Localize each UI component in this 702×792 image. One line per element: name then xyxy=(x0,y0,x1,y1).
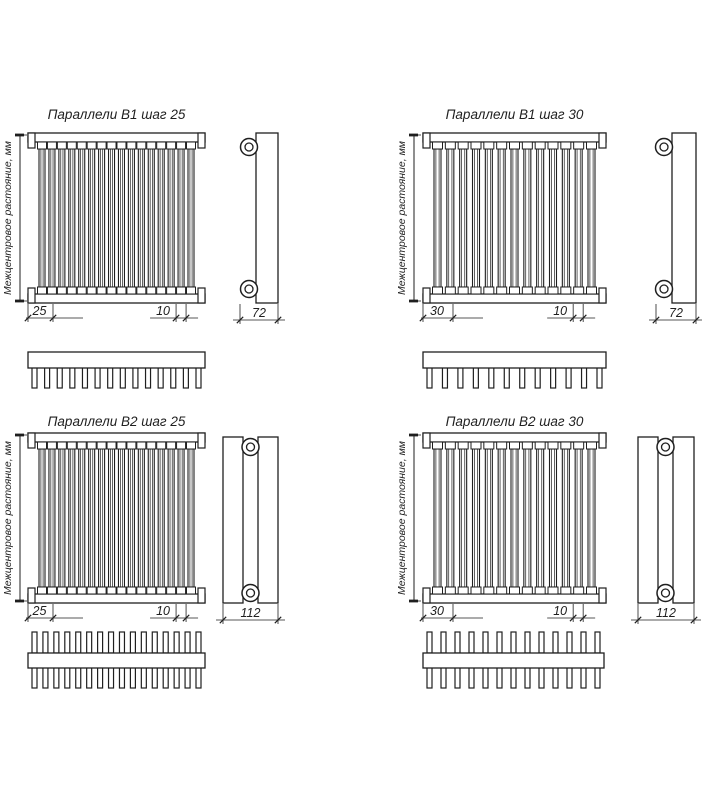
depth-dimension-label: 112 xyxy=(656,606,676,620)
front-view xyxy=(423,433,606,603)
depth-dimension: 72 xyxy=(233,304,285,324)
step-dimension-label: 25 xyxy=(32,304,47,318)
side-view xyxy=(223,437,278,603)
top-view xyxy=(423,352,606,388)
axis-label: Межцентровое растояние, мм xyxy=(396,141,408,295)
radiator-drawing-b1-step-30: Параллели В1 шаг 30Межцентровое растояни… xyxy=(351,100,702,400)
step-dimension-label: 30 xyxy=(430,604,444,618)
top-view xyxy=(423,632,604,688)
tube-width-dimension: 10 xyxy=(547,604,595,622)
depth-dimension-label: 72 xyxy=(252,306,266,320)
tube-width-dimension: 10 xyxy=(150,604,198,622)
center-distance-dimension: Межцентровое растояние, мм xyxy=(2,435,27,601)
front-view xyxy=(28,433,205,603)
drawing-title: Параллели В1 шаг 25 xyxy=(48,107,186,122)
top-view xyxy=(28,632,205,688)
step-dimension: 25 xyxy=(25,604,83,622)
depth-dimension: 72 xyxy=(649,304,702,324)
axis-label: Межцентровое растояние, мм xyxy=(396,441,408,595)
tube-width-dimension-label: 10 xyxy=(156,604,170,618)
radiator-drawing-b2-step-25: Параллели В2 шаг 25Межцентровое растояни… xyxy=(0,410,351,702)
side-view xyxy=(656,133,697,303)
top-view xyxy=(28,352,205,388)
center-distance-dimension: Межцентровое растояние, мм xyxy=(396,135,421,301)
depth-dimension-label: 112 xyxy=(241,606,261,620)
step-dimension-label: 25 xyxy=(32,604,47,618)
side-view xyxy=(638,437,694,603)
axis-label: Межцентровое растояние, мм xyxy=(2,141,14,295)
tube-width-dimension-label: 10 xyxy=(553,304,567,318)
step-dimension-label: 30 xyxy=(430,304,444,318)
drawing-canvas: Параллели В1 шаг 25Межцентровое растояни… xyxy=(0,0,702,792)
drawing-title: Параллели В2 шаг 30 xyxy=(446,414,584,429)
tube-width-dimension: 10 xyxy=(150,304,198,322)
tube-width-dimension: 10 xyxy=(547,304,595,322)
radiator-drawing-b1-step-25: Параллели В1 шаг 25Межцентровое растояни… xyxy=(0,100,351,400)
center-distance-dimension: Межцентровое растояние, мм xyxy=(396,435,421,601)
depth-dimension: 112 xyxy=(631,604,701,624)
center-distance-dimension: Межцентровое растояние, мм xyxy=(2,135,27,301)
step-dimension: 30 xyxy=(420,604,483,622)
quadrant-b2-step-30: Параллели В2 шаг 30Межцентровое растояни… xyxy=(351,410,702,702)
radiator-drawing-b2-step-30: Параллели В2 шаг 30Межцентровое растояни… xyxy=(351,410,702,702)
side-view xyxy=(241,133,279,303)
tube-width-dimension-label: 10 xyxy=(156,304,170,318)
step-dimension: 30 xyxy=(420,304,483,322)
step-dimension: 25 xyxy=(25,304,83,322)
quadrant-b2-step-25: Параллели В2 шаг 25Межцентровое растояни… xyxy=(0,410,351,702)
depth-dimension: 112 xyxy=(216,604,285,624)
depth-dimension-label: 72 xyxy=(669,306,683,320)
tube-width-dimension-label: 10 xyxy=(553,604,567,618)
quadrant-b1-step-25: Параллели В1 шаг 25Межцентровое растояни… xyxy=(0,100,351,400)
quadrant-b1-step-30: Параллели В1 шаг 30Межцентровое растояни… xyxy=(351,100,702,400)
drawing-title: Параллели В2 шаг 25 xyxy=(48,414,186,429)
front-view xyxy=(28,133,205,303)
drawing-title: Параллели В1 шаг 30 xyxy=(446,107,584,122)
front-view xyxy=(423,133,606,303)
axis-label: Межцентровое растояние, мм xyxy=(2,441,14,595)
